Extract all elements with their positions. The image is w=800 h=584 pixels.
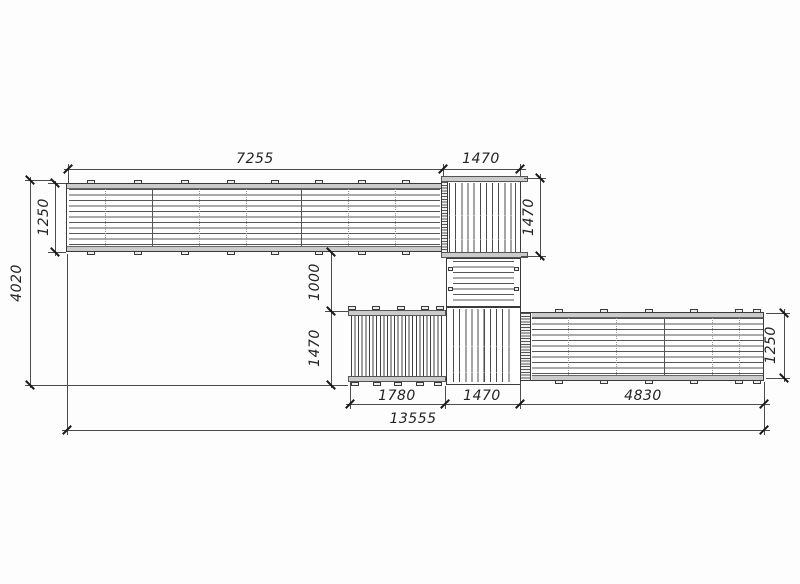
- fastener-clips-bottom: [521, 380, 763, 384]
- joist-line: [568, 318, 569, 375]
- screw-dots: [449, 239, 515, 240]
- side-clip: [448, 287, 453, 291]
- dim-overall-length: 13555: [383, 412, 443, 426]
- screw-dots: [453, 346, 514, 347]
- upper-platform-top-rim: [441, 176, 528, 182]
- platform-edge-line: [515, 183, 516, 253]
- dim-upper-platform-width: 1470: [451, 152, 511, 166]
- board-joint-line: [152, 189, 153, 246]
- walkway-clips-bottom: [348, 382, 446, 386]
- slat-walkway: [348, 310, 446, 382]
- dim-right-deck-length: 4830: [613, 389, 673, 403]
- dim-right-deck-width: 1250: [764, 315, 778, 375]
- side-clip: [448, 267, 453, 271]
- deck-plan-drawing: 7255 1470 1470 1250 4020 1000 1470 1780 …: [0, 0, 800, 584]
- board-joint-line: [301, 189, 302, 246]
- top-deck: [66, 183, 443, 252]
- dim-top-deck-width: 1250: [37, 187, 51, 247]
- fastener-clips-top: [67, 180, 442, 184]
- joist-line: [616, 318, 617, 375]
- joist-line: [739, 318, 740, 375]
- dim-opening-depth: 1000: [308, 252, 322, 312]
- dim-upper-platform-depth: 1470: [522, 187, 536, 247]
- walkway-top-rail: [348, 310, 446, 316]
- lower-platform: [446, 307, 521, 385]
- dim-line-13555: [62, 430, 770, 431]
- extension-line: [25, 385, 348, 386]
- upper-platform-edge-band: [442, 182, 448, 254]
- joist-line: [199, 189, 200, 246]
- dim-lower-section-depth: 1470: [308, 318, 322, 378]
- walkway-clips-top: [348, 306, 446, 310]
- walkway-slats: [351, 316, 443, 376]
- dim-line-4020: [30, 177, 31, 388]
- right-deck-edge-band: [521, 313, 531, 380]
- dim-line-top: [64, 169, 526, 170]
- side-clip: [514, 267, 519, 271]
- joist-line: [105, 189, 106, 246]
- joist-line: [348, 189, 349, 246]
- screw-dots: [453, 372, 514, 373]
- top-deck-planks: [69, 189, 440, 246]
- upper-platform: [441, 176, 521, 257]
- middle-platform-planks: [453, 261, 514, 304]
- joist-line: [395, 189, 396, 246]
- extension-line: [445, 386, 446, 409]
- joist-line: [712, 318, 713, 375]
- dim-line-1250-right: [784, 309, 785, 382]
- fastener-clips-bottom: [67, 251, 442, 255]
- extension-line: [325, 311, 348, 312]
- dim-walkway-length: 1780: [367, 389, 427, 403]
- upper-platform-planks: [449, 183, 515, 253]
- dim-line-1470-right: [540, 174, 541, 260]
- middle-platform: [446, 258, 521, 307]
- board-joint-line: [664, 318, 665, 375]
- dim-line-1250-left: [55, 181, 56, 256]
- dim-overall-depth: 4020: [10, 253, 24, 313]
- dim-line-1000-1470: [331, 251, 332, 388]
- side-clip: [514, 287, 519, 291]
- joist-line: [246, 189, 247, 246]
- right-deck-planks: [532, 318, 763, 375]
- dim-top-deck-length: 7255: [225, 152, 285, 166]
- screw-dots: [449, 215, 515, 216]
- right-deck: [520, 312, 764, 381]
- extension-line: [67, 254, 68, 435]
- dim-lower-platform-width: 1470: [452, 389, 512, 403]
- dim-line-bottom-row: [346, 404, 770, 405]
- fastener-clips-top: [521, 309, 763, 313]
